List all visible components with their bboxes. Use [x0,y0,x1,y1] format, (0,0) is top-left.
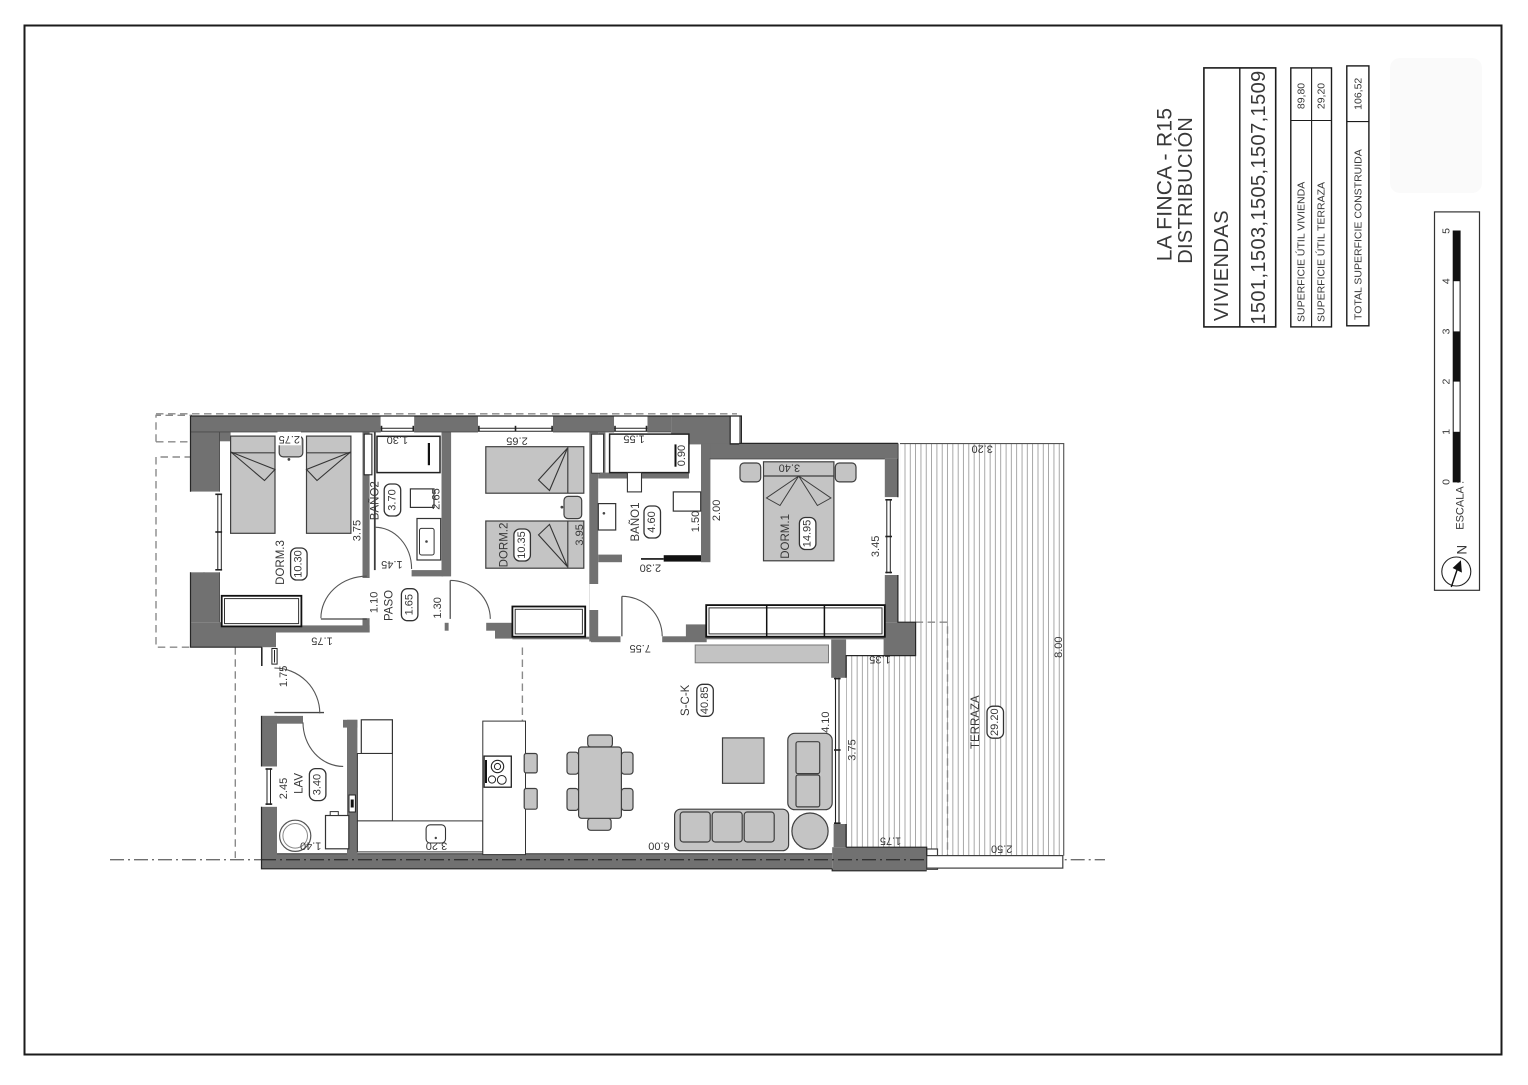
svg-text:3.75: 3.75 [846,739,858,760]
svg-text:1.65: 1.65 [404,594,416,615]
svg-text:10.35: 10.35 [516,531,528,559]
svg-text:89,80: 89,80 [1295,83,1307,109]
svg-text:5: 5 [1441,228,1453,234]
svg-text:DISTRIBUCIÓN: DISTRIBUCIÓN [1174,117,1197,264]
svg-text:3.45: 3.45 [870,536,882,557]
svg-text:0.90: 0.90 [676,445,688,466]
svg-text:3.20: 3.20 [426,840,447,852]
svg-text:1: 1 [1441,429,1453,435]
svg-text:1.35: 1.35 [869,653,890,665]
svg-text:N: N [1454,545,1469,555]
svg-text:DORM.3: DORM.3 [275,540,287,585]
svg-text:2.50: 2.50 [991,843,1012,855]
svg-text:6.00: 6.00 [648,840,669,852]
svg-text:8.00: 8.00 [1053,636,1065,657]
svg-text:2.45: 2.45 [278,778,290,799]
svg-text:3.40: 3.40 [312,774,324,795]
svg-text:1.30: 1.30 [432,597,444,618]
svg-text:106,52: 106,52 [1352,78,1364,110]
svg-text:40.85: 40.85 [699,687,711,715]
svg-text:1.50: 1.50 [690,511,702,532]
svg-text:1.55: 1.55 [623,433,644,445]
svg-text:3.20: 3.20 [971,443,992,455]
svg-text:4: 4 [1441,278,1453,284]
svg-text:10.30: 10.30 [293,550,305,578]
svg-text:4.10: 4.10 [820,711,832,732]
svg-text:BAÑO2: BAÑO2 [369,481,382,520]
svg-text:3: 3 [1441,328,1453,334]
svg-text:3.40: 3.40 [779,462,800,474]
svg-text:29.20: 29.20 [989,708,1001,736]
svg-text:14.95: 14.95 [802,520,814,548]
svg-text:2.00: 2.00 [711,500,723,521]
svg-text:1.75: 1.75 [880,834,901,846]
svg-text:PASO: PASO [383,590,395,621]
svg-text:1.40: 1.40 [300,840,321,852]
svg-text:1.45: 1.45 [381,558,402,570]
svg-text:29,20: 29,20 [1316,83,1328,109]
svg-text:TERRAZA: TERRAZA [970,695,982,749]
svg-text:3.95: 3.95 [574,524,586,545]
svg-text:LA FINCA - R15: LA FINCA - R15 [1154,108,1177,262]
svg-text:0: 0 [1441,479,1453,485]
svg-text:SUPERFICIE ÚTIL TERRAZA: SUPERFICIE ÚTIL TERRAZA [1315,182,1328,322]
svg-text:VIVIENDAS: VIVIENDAS [1211,210,1233,321]
svg-text:SUPERFICIE ÚTIL VIVIENDA: SUPERFICIE ÚTIL VIVIENDA [1294,182,1307,322]
svg-text:1501,1503,1505,1507,1509: 1501,1503,1505,1507,1509 [1248,70,1270,324]
svg-text:7.55: 7.55 [629,642,650,654]
svg-text:4.60: 4.60 [646,511,658,532]
svg-text:3.70: 3.70 [386,489,398,510]
svg-text:3.75: 3.75 [351,520,363,541]
svg-text:ESCALA :: ESCALA : [1454,481,1466,530]
svg-text:1.30: 1.30 [387,433,408,445]
svg-text:2.30: 2.30 [640,561,661,573]
svg-text:TOTAL SUPERFICIE CONSTRUIDA: TOTAL SUPERFICIE CONSTRUIDA [1352,149,1364,320]
svg-text:DORM.2: DORM.2 [498,523,510,568]
svg-text:LAV: LAV [294,773,306,794]
svg-text:1.10: 1.10 [368,592,380,613]
svg-text:2.75: 2.75 [279,433,300,445]
svg-text:1.75: 1.75 [278,666,290,687]
svg-text:2.65: 2.65 [506,434,527,446]
svg-text:BAÑO1: BAÑO1 [629,503,642,542]
svg-text:S-C-K: S-C-K [680,684,692,716]
svg-text:2: 2 [1441,379,1453,385]
svg-text:1.75: 1.75 [311,635,332,647]
svg-text:DORM.1: DORM.1 [780,514,792,559]
svg-text:2.65: 2.65 [431,488,443,509]
